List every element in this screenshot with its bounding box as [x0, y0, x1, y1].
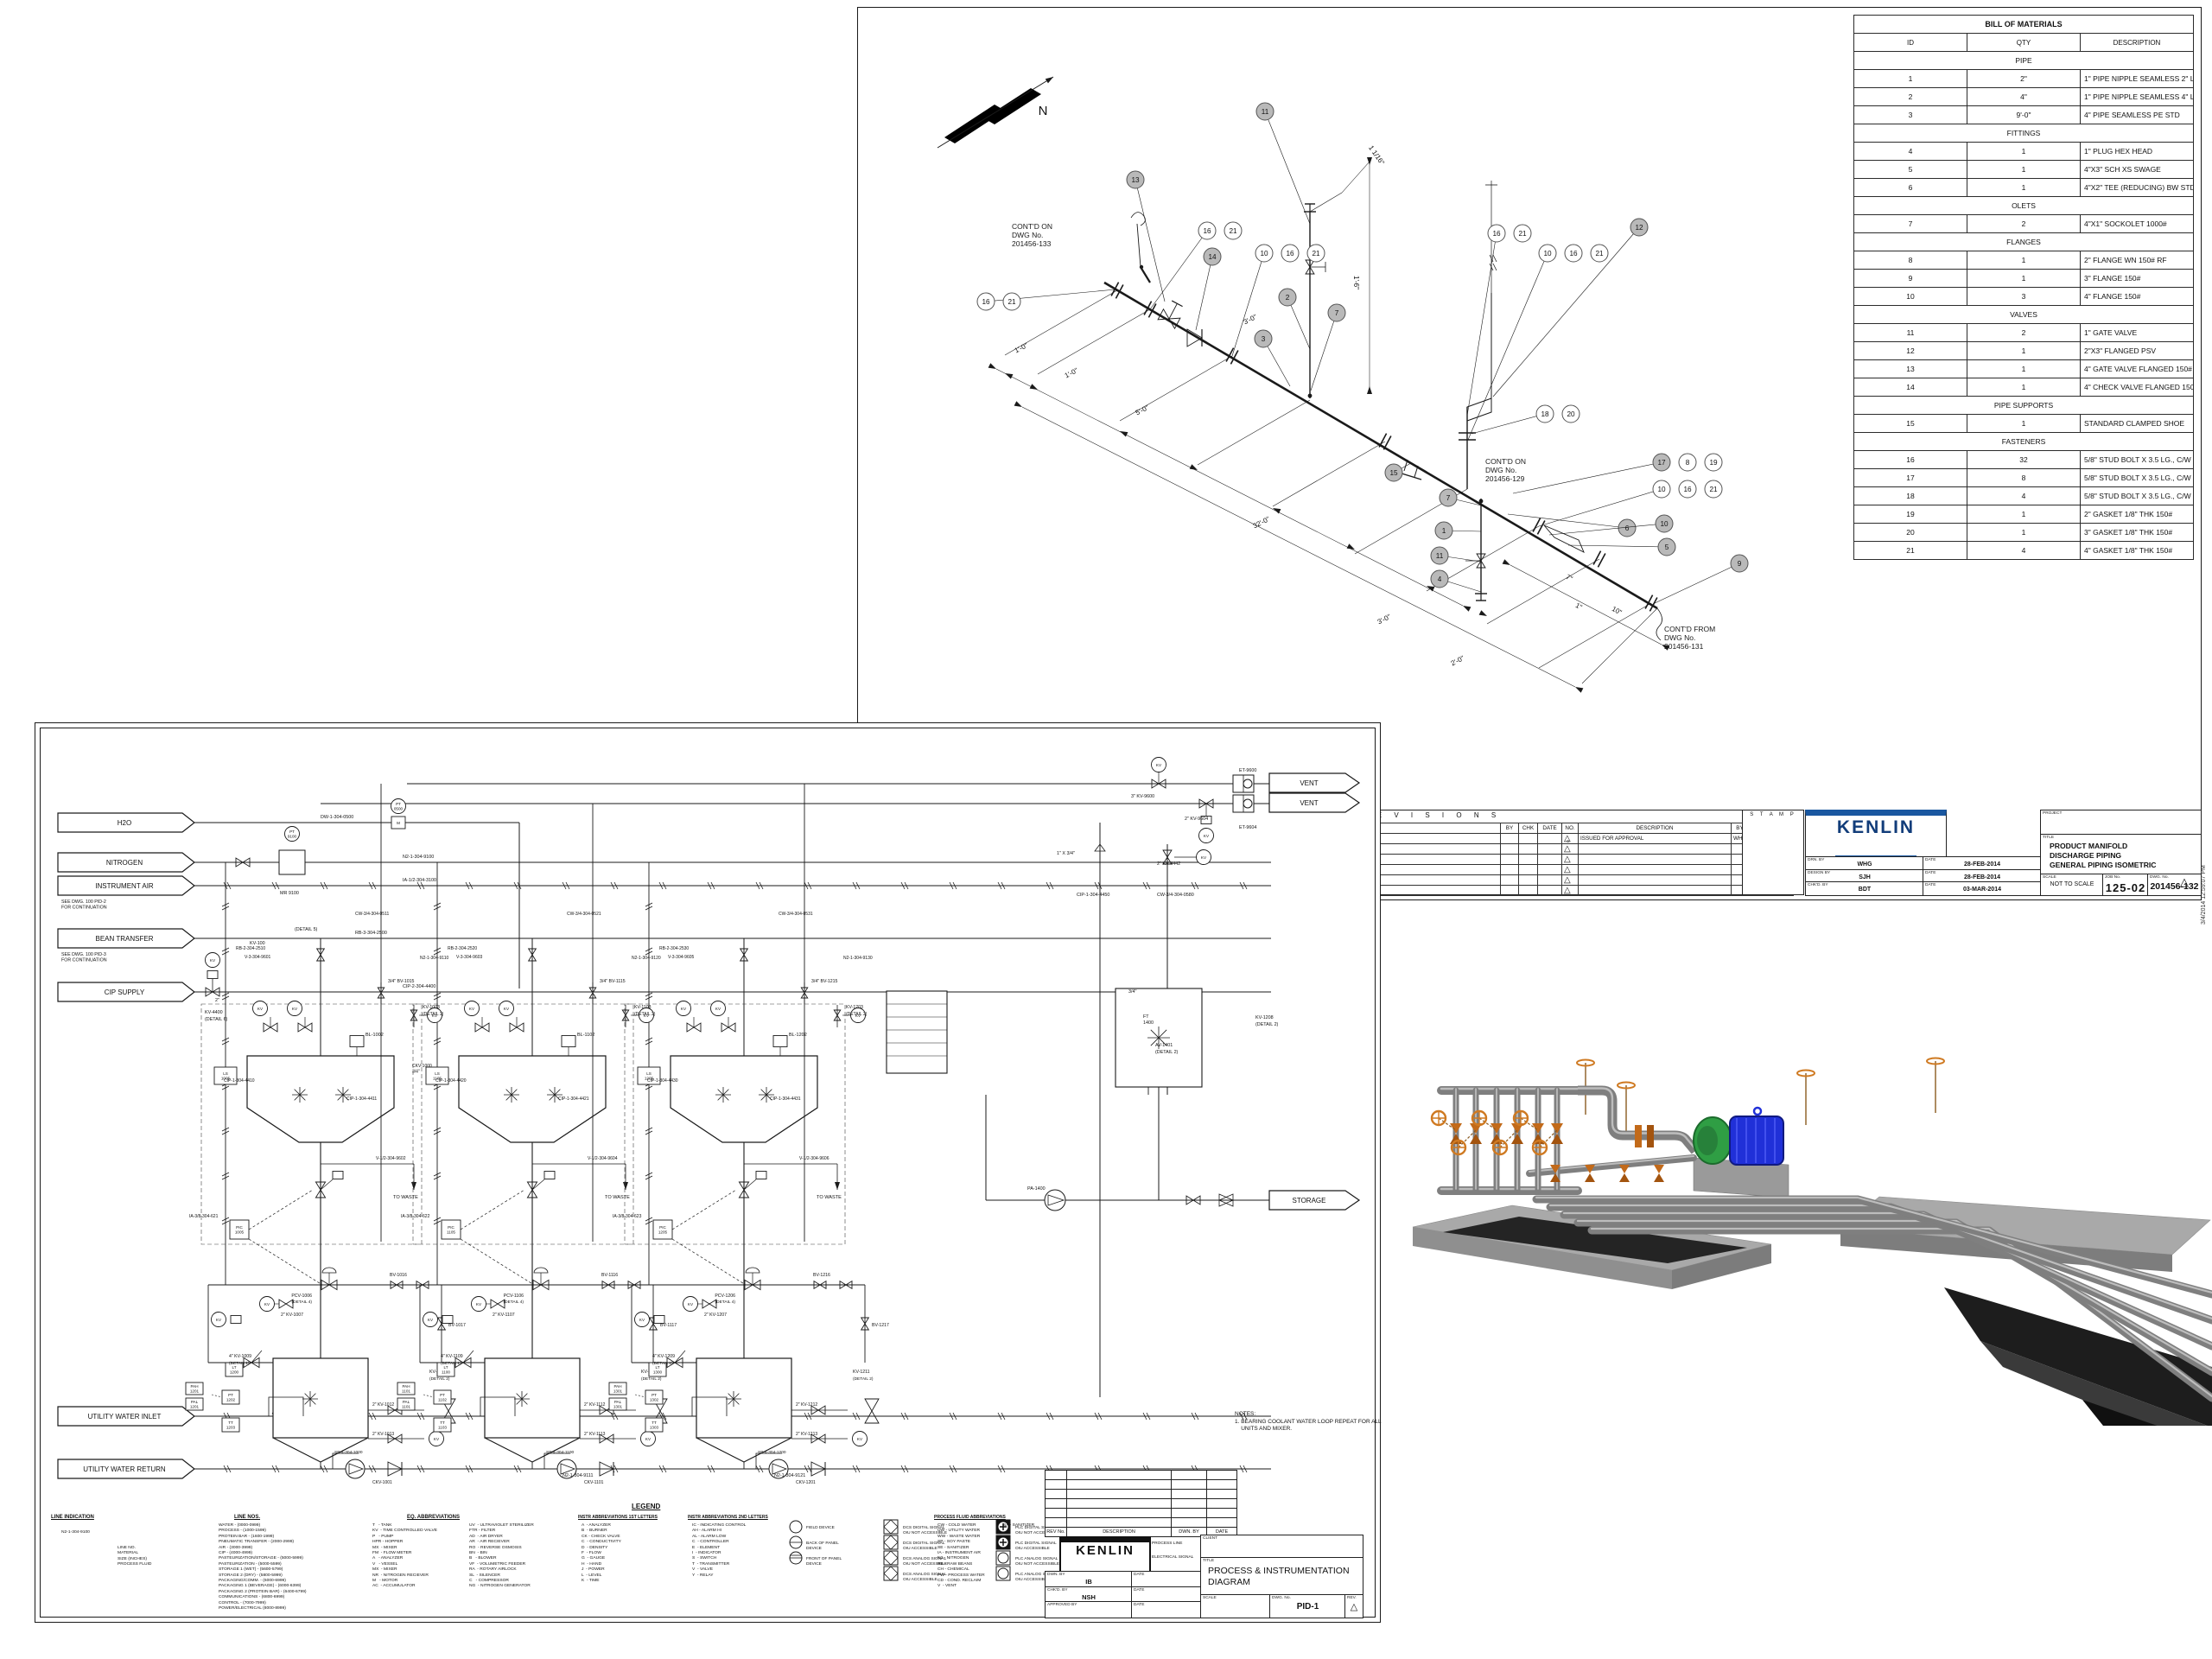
svg-text:16: 16: [1286, 250, 1294, 257]
rev-cell: DATE: [1538, 823, 1562, 834]
svg-text:(DETAIL 4): (DETAIL 4): [715, 1300, 736, 1305]
svg-text:(DETAIL 2): (DETAIL 2): [423, 1012, 444, 1017]
pid-rev-box: REV. △: [1344, 1594, 1363, 1618]
svg-text:BV-1217: BV-1217: [872, 1323, 889, 1328]
svg-text:7": 7": [1565, 573, 1574, 582]
svg-text:TO WASTE: TO WASTE: [817, 1195, 842, 1200]
svg-text:1: 1: [1442, 527, 1446, 535]
svg-text:NITROGEN: NITROGEN: [106, 859, 143, 867]
rev-cell: DESCRIPTION: [1579, 823, 1732, 834]
bom-title: BILL OF MATERIALS: [1854, 16, 2194, 34]
legend-text: LEGEND: [632, 1503, 660, 1510]
bom-section: FASTENERS: [1854, 433, 2194, 451]
project-box: PROJECT: [2040, 810, 2202, 836]
svg-text:1'-0": 1'-0": [1014, 341, 1029, 354]
svg-text:KV-1203: KV-1203: [846, 1005, 863, 1010]
pid-rev-cell: [1046, 1509, 1067, 1518]
svg-text:SP-4-304-1000: SP-4-304-1000: [334, 1450, 363, 1455]
p-title-box: TITLE PROCESS & INSTRUMENTATION DIAGRAM: [1200, 1557, 1363, 1596]
svg-text:PLC DIGITAL SIGNAL: PLC DIGITAL SIGNAL: [1015, 1541, 1057, 1546]
rev-cell: [1579, 886, 1732, 896]
svg-text:TO WASTE: TO WASTE: [605, 1195, 630, 1200]
svg-text:(DETAIL 2): (DETAIL 2): [853, 1376, 874, 1382]
svg-text:PAH: PAH: [402, 1384, 410, 1389]
svg-text:N2-1-304-9100: N2-1-304-9100: [403, 855, 434, 860]
svg-text:3/4": 3/4": [1128, 989, 1136, 995]
rev-cell: [1519, 834, 1538, 844]
bom-cell: 8: [1967, 469, 2081, 487]
plot-timestamp: 3/4/2014 12:59:07 PM: [2201, 865, 2207, 925]
bom-cell: 1: [1967, 524, 2081, 542]
bom-desc: 4" GATE VALVE FLANGED 150# RF: [2081, 360, 2194, 378]
svg-text:TT: TT: [652, 1421, 657, 1425]
svg-text:INSTRUMENT AIR: INSTRUMENT AIR: [95, 882, 154, 890]
svg-text:CKV-1001: CKV-1001: [372, 1480, 392, 1485]
pid-rev-cell: [1207, 1509, 1237, 1518]
rev-cell: [1501, 834, 1519, 844]
title-line: DISCHARGE PIPING: [2050, 851, 2157, 861]
svg-text:TO WASTE: TO WASTE: [393, 1195, 418, 1200]
svg-text:SEE DWG. 100 PID-2: SEE DWG. 100 PID-2: [61, 899, 106, 905]
svg-text:11: 11: [1262, 108, 1269, 116]
pid-dwg-box: DWG. No. PID-1: [1269, 1594, 1346, 1618]
svg-text:KV: KV: [1201, 855, 1207, 860]
bom-desc: 1" PLUG HEX HEAD: [2081, 143, 2194, 161]
svg-text:2" KV-1013: 2" KV-1013: [372, 1432, 394, 1437]
svg-text:6: 6: [1625, 524, 1630, 532]
svg-text:2": 2": [215, 998, 219, 1003]
bom-desc: 2" FLANGE WN 150# RF: [2081, 251, 2194, 270]
svg-text:VENT: VENT: [1300, 779, 1318, 787]
svg-text:1201: 1201: [190, 1389, 200, 1394]
bom-cell: 16: [1854, 451, 1967, 469]
svg-text:CW-3/4-304-0531: CW-3/4-304-0531: [779, 912, 813, 917]
svg-text:KV: KV: [257, 1007, 264, 1011]
svg-text:BV-1016: BV-1016: [390, 1273, 407, 1278]
svg-text:1100: 1100: [442, 1370, 450, 1375]
svg-text:0500: 0500: [394, 807, 404, 811]
svg-text:2" KV-1112: 2" KV-1112: [584, 1402, 606, 1408]
svg-text:(DETAIL 2): (DETAIL 2): [846, 1012, 868, 1017]
svg-text:1201: 1201: [190, 1405, 200, 1409]
svg-text:H2O: H2O: [118, 819, 131, 827]
svg-text:(DETAIL 5): (DETAIL 5): [295, 927, 318, 932]
bom-cell: ID: [1854, 34, 1967, 52]
rev-cell: [1579, 865, 1732, 875]
pid-rev-cell: [1172, 1518, 1207, 1528]
svg-text:4" KV-1209: 4" KV-1209: [652, 1354, 675, 1359]
svg-text:UTILITY WATER INLET: UTILITY WATER INLET: [88, 1413, 162, 1421]
svg-text:(DETAIL 4): (DETAIL 4): [504, 1300, 524, 1305]
svg-text:21: 21: [1229, 227, 1237, 235]
pid-rev-cell: [1172, 1480, 1207, 1490]
svg-text:PCV-1006: PCV-1006: [291, 1294, 312, 1299]
svg-text:LS: LS: [435, 1071, 440, 1076]
bom-desc: 2" GASKET 1/8" THK 150#: [2081, 505, 2194, 524]
svg-text:OIU ACCESSIBLE: OIU ACCESSIBLE: [903, 1577, 938, 1582]
bom-cell: 1: [1967, 415, 2081, 433]
svg-text:PT: PT: [652, 1393, 657, 1397]
svg-text:(DETAIL 2): (DETAIL 2): [429, 1376, 450, 1382]
bom-section: PIPE: [1854, 52, 2194, 70]
svg-text:3'-0": 3'-0": [1243, 313, 1258, 326]
pid-client-box: CLIENT: [1200, 1535, 1363, 1559]
bom-cell: 9: [1854, 270, 1967, 288]
rev-cell: △: [1562, 865, 1579, 875]
bom-cell: 9'-0": [1967, 106, 2081, 124]
rev-cell: [1501, 865, 1519, 875]
svg-text:PAL: PAL: [614, 1400, 622, 1404]
title-line: GENERAL PIPING ISOMETRIC: [2050, 861, 2157, 870]
svg-text:16: 16: [982, 298, 990, 306]
svg-text:17: 17: [1657, 459, 1666, 467]
svg-text:7: 7: [1446, 494, 1451, 502]
svg-text:KV-100: KV-100: [250, 941, 265, 946]
pid-rev-cell: [1172, 1490, 1207, 1499]
rev-cell: [1501, 886, 1519, 896]
svg-text:9: 9: [1738, 560, 1742, 568]
bom-cell: DESCRIPTION: [2081, 34, 2194, 52]
svg-text:PAL: PAL: [191, 1400, 199, 1404]
svg-text:CW-3/4-304-0521: CW-3/4-304-0521: [567, 912, 601, 917]
3d-piping-render: [1408, 1028, 2212, 1426]
bom-cell: 1: [1967, 505, 2081, 524]
bom-desc: 1" PIPE NIPPLE SEAMLESS 2" LONG: [2081, 70, 2194, 88]
bom-cell: 1: [1967, 251, 2081, 270]
svg-text:21: 21: [1518, 230, 1527, 238]
bom-cell: 17: [1854, 469, 1967, 487]
svg-text:11: 11: [1436, 552, 1444, 560]
svg-text:KV-1103: KV-1103: [634, 1005, 652, 1010]
bom-cell: 15: [1854, 415, 1967, 433]
svg-text:KV-1211: KV-1211: [853, 1370, 870, 1375]
bom-section: FLANGES: [1854, 233, 2194, 251]
legend-text: PROCESS FLUID ABBREVIATIONS: [934, 1515, 1006, 1520]
svg-text:2" KV-1213: 2" KV-1213: [796, 1432, 817, 1437]
svg-text:(DETAIL 1): (DETAIL 1): [652, 1361, 673, 1366]
svg-text:OIU NOT ACCESSIBLE: OIU NOT ACCESSIBLE: [1015, 1561, 1059, 1567]
svg-text:SP-4-304-1100: SP-4-304-1100: [546, 1450, 575, 1455]
pid-rev-header: DESCRIPTION: [1067, 1528, 1172, 1537]
bom-cell: 4": [1967, 88, 2081, 106]
bom-section: PIPE SUPPORTS: [1854, 397, 2194, 415]
svg-text:2: 2: [1286, 294, 1290, 302]
svg-text:N: N: [1039, 104, 1048, 118]
pid-titleblock-field: DATE: [1131, 1601, 1202, 1618]
legend-text: T - TANK KV - TIME CONTROLLED VALVE P - …: [372, 1523, 437, 1590]
title-line: PRODUCT MANIFOLD: [2050, 842, 2157, 851]
bom-desc: 1" GATE VALVE: [2081, 324, 2194, 342]
svg-text:CIP-1-304-4421: CIP-1-304-4421: [558, 1096, 589, 1102]
rev-cell: [1538, 886, 1562, 896]
svg-text:KV: KV: [639, 1318, 645, 1322]
bom-desc: 3" FLANGE 150#: [2081, 270, 2194, 288]
bom-cell: 6: [1854, 179, 1967, 197]
legend-text: WATER - (0000-0999) PROCESS - (1000-1599…: [219, 1523, 307, 1612]
svg-text:N2-1-304-9120: N2-1-304-9120: [632, 956, 661, 961]
bom-desc: 4" FLANGE 150#: [2081, 288, 2194, 306]
svg-text:IA-1/2-304-3100: IA-1/2-304-3100: [403, 878, 436, 883]
svg-text:KV: KV: [434, 1437, 440, 1441]
svg-text:PCV-1206: PCV-1206: [715, 1294, 735, 1299]
bom-cell: 21: [1854, 542, 1967, 560]
svg-text:1101: 1101: [402, 1389, 410, 1394]
svg-text:4" KV-1109: 4" KV-1109: [441, 1354, 463, 1359]
bom-cell: 11: [1854, 324, 1967, 342]
svg-text:5'-0": 5'-0": [1135, 404, 1150, 416]
svg-text:14: 14: [1208, 253, 1217, 261]
svg-text:LS: LS: [223, 1071, 228, 1076]
svg-text:19: 19: [1709, 459, 1718, 467]
continuation-note: CONT'D FROM DWG No. 201456-131: [1664, 625, 1715, 651]
svg-text:N2-1-304-9130: N2-1-304-9130: [843, 956, 873, 961]
svg-text:(DETAIL 1): (DETAIL 1): [441, 1361, 461, 1366]
svg-text:1" X 3/4": 1" X 3/4": [1057, 851, 1075, 856]
bom-cell: 2": [1967, 70, 2081, 88]
svg-text:V-3-304-9605: V-3-304-9605: [668, 955, 695, 960]
svg-text:IA-3/8-304-621: IA-3/8-304-621: [189, 1214, 219, 1219]
svg-text:DEVICE: DEVICE: [806, 1546, 822, 1551]
pid-rev-cell: [1172, 1471, 1207, 1480]
bill-of-materials-table: BILL OF MATERIALSIDQTYDESCRIPTIONPIPE12"…: [1853, 15, 2194, 560]
svg-text:12: 12: [1635, 224, 1643, 232]
pid-rev-cell: [1067, 1490, 1172, 1499]
rev-cell: [1519, 875, 1538, 886]
rev-cell: BY: [1501, 823, 1519, 834]
pid-rev-cell: [1067, 1509, 1172, 1518]
legend-text: IC - INDICATING CONTROL AH - ALARM HI AL…: [692, 1523, 746, 1579]
svg-text:15: 15: [1389, 469, 1398, 477]
svg-text:KV: KV: [428, 1318, 434, 1322]
svg-text:BV-1216: BV-1216: [813, 1273, 830, 1278]
rev-cell: ISSUED FOR APPROVAL: [1579, 834, 1732, 844]
rev-cell: [1579, 844, 1732, 855]
svg-text:KV: KV: [645, 1437, 652, 1441]
pid-rev-cell: [1207, 1518, 1237, 1528]
svg-text:1": 1": [1574, 601, 1584, 611]
svg-text:N2-1-304-9121: N2-1-304-9121: [774, 1473, 805, 1478]
svg-text:CW-3/4-304-0511: CW-3/4-304-0511: [355, 912, 389, 917]
svg-text:UTILITY WATER RETURN: UTILITY WATER RETURN: [83, 1465, 166, 1473]
pid-rev-cell: [1046, 1499, 1067, 1509]
svg-text:BACK OF PANEL: BACK OF PANEL: [806, 1541, 839, 1546]
bom-cell: 14: [1854, 378, 1967, 397]
continuation-note: CONT'D ON DWG No. 201456-133: [1012, 222, 1052, 248]
svg-text:1105: 1105: [447, 1230, 455, 1235]
svg-text:21: 21: [1595, 250, 1604, 257]
svg-text:TT: TT: [228, 1421, 233, 1425]
svg-text:2" KV-1113: 2" KV-1113: [584, 1432, 606, 1437]
svg-text:1005: 1005: [235, 1230, 245, 1235]
svg-text:1101: 1101: [402, 1405, 410, 1409]
svg-text:ELECTRICAL SIGNAL: ELECTRICAL SIGNAL: [1152, 1554, 1194, 1560]
svg-text:(DETAIL 6): (DETAIL 6): [205, 1017, 228, 1022]
bom-cell: QTY: [1967, 34, 2081, 52]
bom-cell: 1: [1967, 378, 2081, 397]
svg-text:16: 16: [1492, 230, 1501, 238]
svg-text:RB-2-304-2530: RB-2-304-2530: [659, 946, 689, 951]
bom-desc: STANDARD CLAMPED SHOE: [2081, 415, 2194, 433]
svg-text:ET-9604: ET-9604: [1239, 825, 1256, 830]
rev-cell: [1501, 844, 1519, 855]
bom-cell: 8: [1854, 251, 1967, 270]
bom-desc: 5/8" STUD BOLT X 3.5 LG., C/W HEX NUTS: [2081, 469, 2194, 487]
svg-text:3'-0": 3'-0": [1376, 613, 1392, 626]
pid-notes: NOTES: 1. BEARING COOLANT WATER LOOP REP…: [1235, 1411, 1382, 1433]
pid-rev-cell: [1172, 1499, 1207, 1509]
svg-text:BV-1116: BV-1116: [601, 1273, 618, 1278]
svg-text:KV: KV: [681, 1007, 687, 1011]
svg-text:V-3-304-9603: V-3-304-9603: [456, 955, 483, 960]
rev-cell: [1538, 865, 1562, 875]
svg-text:ET-9600: ET-9600: [1239, 768, 1256, 773]
svg-text:2" KV-9604: 2" KV-9604: [1185, 817, 1208, 822]
svg-text:PT: PT: [289, 829, 295, 834]
svg-text:CIP-1-304-4430: CIP-1-304-4430: [647, 1078, 678, 1084]
svg-text:OIU ACCESSIBLE: OIU ACCESSIBLE: [903, 1546, 938, 1551]
svg-text:KV-4400: KV-4400: [205, 1010, 223, 1015]
svg-text:PIC: PIC: [236, 1225, 243, 1230]
svg-text:CIP-1-304-4411: CIP-1-304-4411: [346, 1096, 377, 1102]
svg-text:5: 5: [1665, 543, 1669, 551]
svg-text:1302: 1302: [650, 1398, 659, 1402]
svg-text:4: 4: [1438, 575, 1442, 583]
svg-text:(DETAIL 1): (DETAIL 1): [229, 1361, 250, 1366]
stamp-box: S T A M P: [1742, 810, 1804, 895]
svg-text:10: 10: [1657, 486, 1666, 493]
pid-rev-cell: [1067, 1518, 1172, 1528]
svg-text:PROCESS LINE: PROCESS LINE: [1152, 1541, 1182, 1546]
bom-section: OLETS: [1854, 197, 2194, 215]
svg-text:16: 16: [1203, 227, 1211, 235]
rev-cell: [1538, 855, 1562, 865]
svg-text:CW-3/4-304-0580: CW-3/4-304-0580: [1157, 893, 1194, 898]
svg-text:KV: KV: [715, 1007, 721, 1011]
legend-text: EQ. ABBREVIATIONS: [407, 1515, 460, 1520]
bom-cell: 3: [1854, 106, 1967, 124]
svg-text:KV: KV: [264, 1302, 270, 1306]
svg-text:KV: KV: [688, 1302, 694, 1306]
bom-desc: 4"X2" TEE (REDUCING) BW STD: [2081, 179, 2194, 197]
legend-text: INSTR ABBREVIATIONS 1ST LETTERS: [578, 1515, 658, 1520]
titleblock-field: DATE03-MAR-2014: [1923, 881, 2042, 896]
svg-text:1200: 1200: [230, 1370, 239, 1375]
svg-text:21: 21: [1709, 486, 1718, 493]
svg-text:1301: 1301: [613, 1405, 623, 1409]
bom-desc: 3" GASKET 1/8" THK 150#: [2081, 524, 2194, 542]
rev-cell: [1538, 844, 1562, 855]
svg-text:LS: LS: [646, 1071, 652, 1076]
svg-text:1303: 1303: [650, 1426, 659, 1430]
svg-text:FOR CONTINUATION: FOR CONTINUATION: [61, 906, 107, 911]
svg-text:CIP-2-304-4400: CIP-2-304-4400: [403, 984, 435, 989]
svg-text:KV: KV: [504, 1007, 510, 1011]
svg-text:1301: 1301: [613, 1389, 623, 1394]
svg-text:PIC: PIC: [659, 1225, 666, 1230]
svg-text:TT: TT: [440, 1421, 445, 1425]
svg-text:BL-1002: BL-1002: [365, 1033, 384, 1038]
pid-rev-cell: [1046, 1471, 1067, 1480]
pid-titleblock-field: APPROVED BY: [1045, 1601, 1133, 1618]
svg-text:3: 3: [1262, 335, 1266, 343]
svg-text:V-3-304-9601: V-3-304-9601: [245, 955, 271, 960]
rev-cell: △: [1562, 855, 1579, 865]
svg-text:CIP-1-304-4420: CIP-1-304-4420: [435, 1078, 467, 1084]
pid-rev-cell: [1067, 1499, 1172, 1509]
svg-text:1103: 1103: [438, 1426, 447, 1430]
drawing-set-canvas: { "iso": { "plot_stamp": "3/4/2014 12:59…: [0, 0, 2212, 1659]
bom-desc: 2"X3" FLANGED PSV: [2081, 342, 2194, 360]
svg-text:KV: KV: [857, 1437, 863, 1441]
rev-triangle-icon: △: [2180, 875, 2189, 889]
svg-text:21: 21: [1312, 250, 1320, 257]
svg-text:1300: 1300: [653, 1370, 663, 1375]
rev-cell: △0: [1562, 834, 1579, 844]
svg-text:(DETAIL 2): (DETAIL 2): [641, 1376, 662, 1382]
bom-cell: 1: [1967, 342, 2081, 360]
svg-text:PT: PT: [396, 802, 401, 806]
svg-text:1'-0": 1'-0": [1064, 366, 1079, 379]
bom-cell: 10: [1854, 288, 1967, 306]
svg-text:32'-0": 32'-0": [1252, 515, 1271, 530]
svg-text:PAL: PAL: [403, 1400, 410, 1404]
svg-text:2" KV-1212: 2" KV-1212: [796, 1402, 817, 1408]
legend-text: LINE INDICATION: [51, 1515, 94, 1520]
legend-text: UV - ULTRAVIOLET STERILIZER FTR - FILTER…: [469, 1523, 534, 1590]
svg-text:KV-1003: KV-1003: [423, 1005, 440, 1010]
svg-text:4" KV-1009: 4" KV-1009: [229, 1354, 251, 1359]
svg-text:3/4": 3/4": [412, 1069, 420, 1074]
svg-text:1202: 1202: [226, 1398, 236, 1402]
job-no-box: JOB No. 125-02: [2102, 874, 2149, 896]
svg-text:3/4" BV-1115: 3/4" BV-1115: [600, 979, 626, 984]
bom-cell: 18: [1854, 487, 1967, 505]
bom-desc: 4" CHECK VALVE FLANGED 150# RF: [2081, 378, 2194, 397]
svg-text:DW-1-304-0500: DW-1-304-0500: [321, 815, 353, 820]
svg-text:8: 8: [1686, 459, 1690, 467]
bom-cell: 20: [1854, 524, 1967, 542]
svg-text:1102: 1102: [438, 1398, 447, 1402]
rev-cell: [1579, 855, 1732, 865]
svg-text:KV: KV: [476, 1302, 482, 1306]
svg-text:BL-1202: BL-1202: [789, 1033, 807, 1038]
svg-text:FOR CONTINUATION: FOR CONTINUATION: [61, 958, 107, 963]
bom-desc: 5/8" STUD BOLT X 3.5 LG., C/W HEX NUTS: [2081, 487, 2194, 505]
svg-text:16: 16: [1569, 250, 1578, 257]
pid-rev-cell: [1172, 1509, 1207, 1518]
pid-rev-cell: [1207, 1490, 1237, 1499]
bom-cell: 4: [1967, 542, 2081, 560]
svg-text:(DETAIL 2): (DETAIL 2): [634, 1012, 656, 1017]
legend-text: CW - COLD WATER UW - UTILITY WATER WW - …: [938, 1523, 985, 1590]
svg-text:SP-4-304-1200: SP-4-304-1200: [758, 1450, 786, 1455]
svg-text:V-1/2-304-9606: V-1/2-304-9606: [799, 1156, 829, 1161]
svg-text:18: 18: [1541, 410, 1549, 418]
svg-text:CIP-1-304-4410: CIP-1-304-4410: [224, 1078, 255, 1084]
svg-text:1'-6": 1'-6": [1352, 276, 1360, 289]
continuation-note: CONT'D ON DWG No. 201456-129: [1485, 457, 1526, 483]
bom-cell: 4: [1967, 487, 2081, 505]
svg-text:CKV-1000: CKV-1000: [412, 1064, 432, 1069]
bom-desc: 4" GASKET 1/8" THK 150#: [2081, 542, 2194, 560]
svg-text:IA-3/8-304-623: IA-3/8-304-623: [613, 1214, 642, 1219]
svg-text:PCV-1106: PCV-1106: [504, 1294, 524, 1299]
legend-text: SA - SANITIZER: [1003, 1523, 1034, 1529]
svg-text:CKV-1101: CKV-1101: [584, 1480, 604, 1485]
svg-text:BEAN TRANSFER: BEAN TRANSFER: [96, 935, 154, 943]
svg-text:FIELD DEVICE: FIELD DEVICE: [806, 1525, 835, 1530]
svg-text:N2-1-304-9111: N2-1-304-9111: [563, 1473, 593, 1478]
